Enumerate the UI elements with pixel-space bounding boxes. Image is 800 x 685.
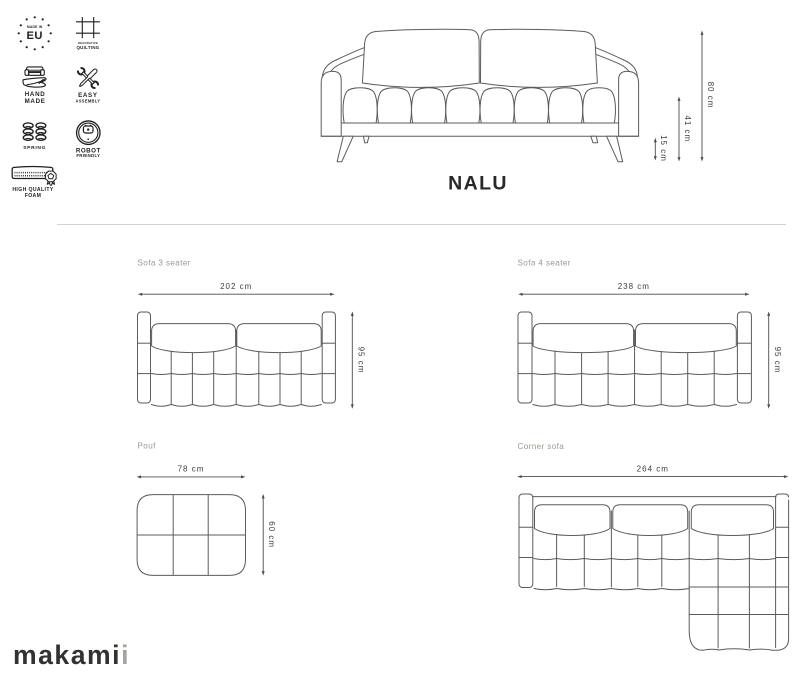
svg-text:Corner sofa: Corner sofa: [518, 442, 565, 451]
svg-text:NALU: NALU: [448, 173, 508, 195]
svg-text:MADE: MADE: [25, 98, 46, 105]
svg-text:EU: EU: [27, 30, 43, 42]
svg-text:80 cm: 80 cm: [706, 82, 715, 109]
svg-text:makamii: makamii: [13, 640, 130, 670]
svg-text:FRIENDLY: FRIENDLY: [76, 153, 100, 158]
svg-text:78 cm: 78 cm: [178, 465, 205, 474]
svg-text:95 cm: 95 cm: [773, 347, 782, 374]
svg-text:ASSEMBLY: ASSEMBLY: [76, 99, 101, 104]
svg-text:QUILTING: QUILTING: [76, 45, 99, 50]
svg-text:202 cm: 202 cm: [220, 282, 252, 291]
svg-text:15 cm: 15 cm: [659, 135, 668, 162]
svg-text:238 cm: 238 cm: [618, 282, 650, 291]
svg-text:60 cm: 60 cm: [267, 521, 276, 548]
svg-text:SPRING: SPRING: [23, 145, 46, 151]
svg-text:264 cm: 264 cm: [637, 464, 669, 473]
svg-text:Sofa 3 seater: Sofa 3 seater: [138, 259, 191, 268]
svg-text:FOAM: FOAM: [25, 193, 42, 199]
svg-text:41 cm: 41 cm: [683, 115, 692, 142]
svg-text:95 cm: 95 cm: [356, 347, 365, 374]
svg-text:HAND: HAND: [25, 91, 46, 98]
svg-text:Sofa 4 seater: Sofa 4 seater: [518, 259, 571, 268]
svg-text:MADE IN: MADE IN: [27, 25, 43, 29]
svg-text:Pouf: Pouf: [138, 442, 157, 451]
